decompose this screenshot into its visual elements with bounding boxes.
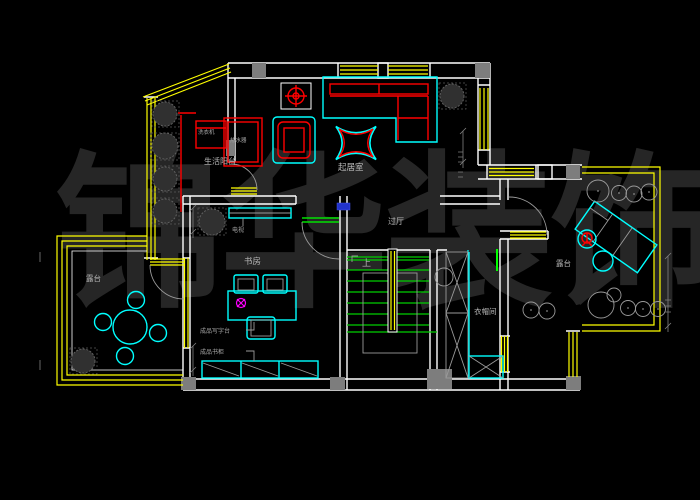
column: [252, 63, 266, 78]
column: [475, 63, 490, 78]
label-hall: 过厅: [388, 216, 404, 226]
column: [566, 165, 580, 179]
study-plant: [199, 209, 225, 235]
bookcase: [202, 361, 318, 378]
label-cloakroom: 衣帽间: [474, 306, 497, 316]
label-water-heater: 热水器: [230, 136, 247, 144]
label-stairs-up: 上: [362, 258, 371, 269]
label-study: 书房: [244, 256, 261, 267]
decor-table: [281, 83, 311, 109]
label-bookcase: 成品书柜: [200, 348, 224, 356]
column: [330, 377, 345, 390]
label-life-balcony: 生活阳台: [204, 156, 236, 166]
label-living-room: 起居室: [338, 162, 364, 173]
label-desk: 成品写字台: [200, 327, 230, 335]
column: [181, 377, 196, 390]
living-room-plant: [440, 84, 464, 108]
terrace-left-plant: [71, 349, 95, 373]
floor-plan-drawing: 锦 华 装 饰: [0, 0, 700, 500]
label-tv: 电视: [232, 226, 244, 234]
stool: [117, 348, 134, 365]
label-washing-machine: 洗衣机: [198, 128, 215, 136]
floor-plan-canvas: 锦 华 装 饰: [0, 0, 700, 500]
blue-marker: [337, 203, 350, 210]
stair-rail: [388, 249, 397, 332]
label-terrace-right: 露台: [556, 258, 571, 268]
label-terrace-left: 露台: [86, 273, 101, 283]
column: [566, 376, 581, 390]
